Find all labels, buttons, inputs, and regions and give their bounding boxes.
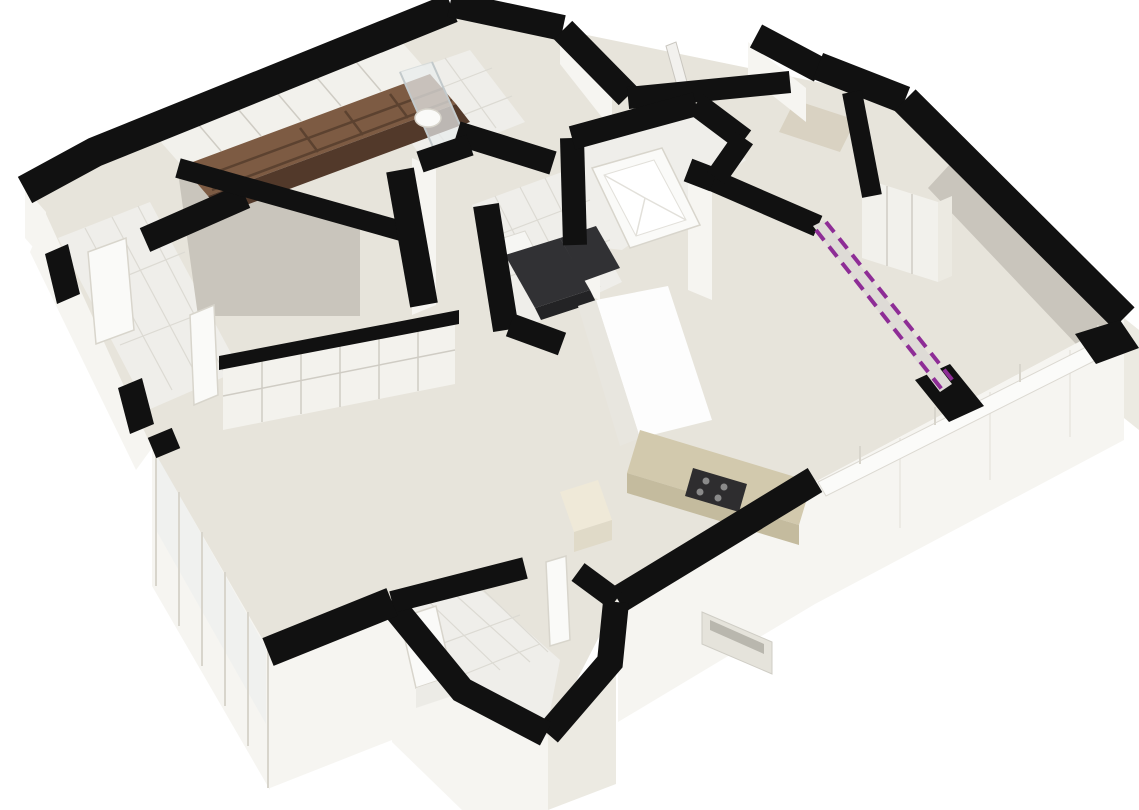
floor-plan-canvas — [0, 0, 1139, 810]
corridor-open-door — [190, 305, 218, 405]
entry-door — [88, 238, 134, 344]
floor-plan-render — [0, 0, 1139, 810]
wall-tub-room-west — [572, 138, 575, 245]
sliding-closet-side — [938, 196, 952, 282]
shower-tray — [415, 109, 441, 127]
burner-4 — [715, 495, 722, 502]
wall-window-top-stub — [152, 438, 176, 448]
bathroom-open-door — [546, 556, 570, 646]
burner-2 — [721, 484, 728, 491]
burner-1 — [703, 478, 710, 485]
burner-3 — [697, 489, 704, 496]
